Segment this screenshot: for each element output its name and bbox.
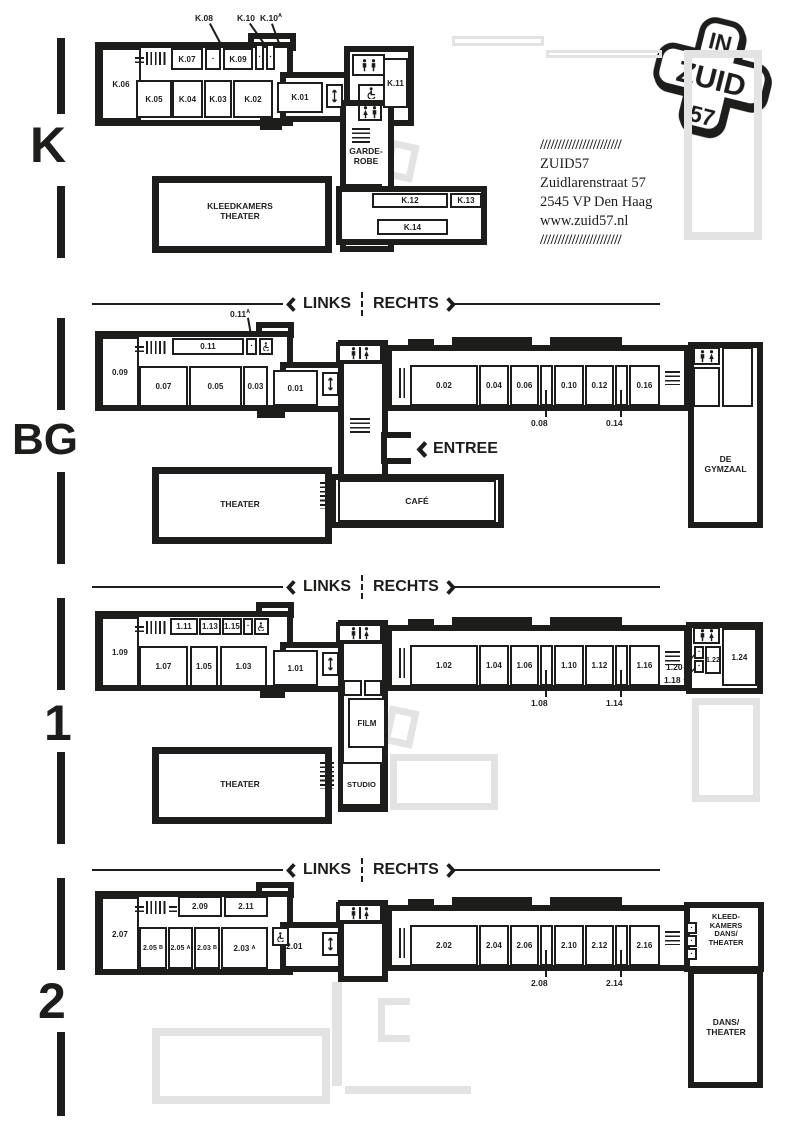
person-icon (699, 350, 706, 363)
wheelchair-icon (366, 87, 378, 99)
links-label: LINKS (303, 578, 351, 596)
person-icon (350, 627, 357, 640)
stairs-hatch (135, 346, 144, 352)
room-1-10: 1.10 (554, 645, 584, 686)
room-0-01: 0.01 (273, 370, 318, 406)
room-k11: K.11 (383, 58, 408, 108)
rechts-label: RECHTS (373, 578, 439, 596)
callout-1-08: 1.08 (531, 698, 548, 708)
room-k02: K.02 (233, 80, 273, 118)
direction-divider (361, 858, 363, 882)
entree-label: ENTREE (416, 440, 498, 458)
callout-leader (620, 670, 622, 697)
room-1-02: 1.02 (410, 645, 478, 686)
wc-room (336, 902, 384, 924)
callout-0-14: 0.14 (606, 418, 623, 428)
direction-header: LINKS RECHTS (286, 575, 456, 599)
kleedkamers-dans-label: KLEED- KAMERS DANS/ THEATER (696, 913, 756, 948)
stairs-hatch (146, 341, 166, 354)
stairs-hatch (342, 184, 382, 192)
room-unlabeled: ▪ (243, 618, 253, 635)
ghost-outline (546, 50, 662, 58)
room-1-09: 1.09 (101, 617, 139, 687)
dot-marker: ▪ (691, 952, 693, 957)
person-icon (708, 629, 715, 642)
stairs-hatch (135, 906, 144, 912)
floor-2-bar-top (57, 878, 65, 970)
wheelchair-icon (262, 342, 271, 351)
wc-accessible-room (358, 84, 385, 102)
address-website: www.zuid57.nl (540, 212, 652, 231)
room-1-15: 1.15 (222, 618, 242, 635)
ghost-outline (452, 36, 544, 46)
room-2-05a: 2.05A (168, 927, 193, 969)
room-2-03b: 2.03B (194, 927, 220, 969)
elevator-icon (326, 84, 343, 108)
room-1-22: 1.22 (705, 646, 721, 674)
stairs-hatch (352, 128, 370, 145)
person-icon (370, 59, 377, 72)
stairs-hatch (135, 626, 144, 632)
stairs-hatch (665, 371, 680, 385)
wheelchair-icon (276, 932, 286, 942)
ghost-outline (378, 998, 410, 1042)
wc-divider (359, 907, 361, 919)
room-unlabeled (364, 680, 382, 696)
wall-tab (260, 118, 282, 130)
room-0-06: 0.06 (510, 365, 539, 406)
film-room: FILM (348, 698, 386, 748)
garderobe-label: GARDE- ROBE (336, 147, 396, 167)
links-label: LINKS (303, 861, 351, 879)
floor-2-letter: 2 (38, 976, 66, 1026)
links-label: LINKS (303, 295, 351, 313)
floor-1-bar-bottom (57, 752, 65, 844)
room-1-03: 1.03 (220, 646, 267, 687)
wheelchair-icon (257, 622, 266, 631)
room-1-04: 1.04 (479, 645, 509, 686)
wc-room (336, 342, 384, 364)
floor-1-bar-top (57, 598, 65, 690)
callout-leader (545, 670, 547, 697)
direction-rule (452, 586, 660, 588)
ghost-outline (332, 982, 342, 1086)
direction-header: LINKS RECHTS (286, 858, 456, 882)
direction-divider (361, 575, 363, 599)
room-k03: K.03 (204, 80, 232, 118)
vent-hatch (399, 648, 407, 678)
wc-divider (359, 627, 361, 639)
room-1-24: 1.24 (722, 628, 757, 686)
callout-k10a: K.10A (260, 13, 282, 23)
chevron-left-icon (286, 297, 296, 312)
direction-rule (92, 586, 283, 588)
cafe-room: CAFÉ (338, 480, 496, 522)
room-2-12: 2.12 (585, 925, 614, 966)
floor-bg-bar-top (57, 318, 65, 410)
room-0-11: 0.11 (172, 338, 244, 355)
elevator-icon (322, 652, 339, 676)
callout-2-14: 2.14 (606, 978, 623, 988)
address-city: 2545 VP Den Haag (540, 193, 652, 212)
chevron-left-icon (416, 441, 428, 458)
direction-header: LINKS RECHTS (286, 292, 456, 316)
theater-label: THEATER (160, 500, 320, 510)
room-0-11a: ▪ (246, 338, 257, 355)
room-2-06: 2.06 (510, 925, 539, 966)
address-slashes-top: /////////////////////// (540, 136, 652, 155)
room-2-02: 2.02 (410, 925, 478, 966)
floor-2-bar-bottom (57, 1032, 65, 1116)
person-icon (350, 907, 357, 920)
room-k10a: ▪ (266, 44, 275, 70)
direction-divider (361, 292, 363, 316)
room-2-11: 2.11 (224, 896, 268, 917)
dot-marker: ▪ (698, 664, 700, 669)
floor-bg-bar-bottom (57, 472, 65, 564)
stairs-hatch (146, 52, 166, 65)
room-1-05: 1.05 (190, 646, 218, 687)
direction-rule (92, 303, 283, 305)
wc-room (693, 627, 720, 644)
address-street: Zuidlarenstraat 57 (540, 174, 652, 193)
ghost-outline (390, 754, 498, 810)
vent-hatch (320, 482, 334, 509)
room-2-04: 2.04 (479, 925, 509, 966)
room-0-16: 0.16 (629, 365, 660, 406)
room-1-11: 1.11 (170, 618, 198, 635)
room-k13: K.13 (450, 193, 482, 208)
wall-tab (257, 406, 285, 418)
room-k07: K.07 (171, 48, 203, 70)
dot-marker: ▪ (212, 57, 214, 62)
room-2-16: 2.16 (629, 925, 660, 966)
vent-hatch (320, 762, 334, 789)
room-1-12: 1.12 (585, 645, 614, 686)
room-k12: K.12 (372, 193, 448, 208)
room-1-07: 1.07 (139, 646, 188, 687)
stairs-hatch (146, 901, 168, 914)
floor-k-bar-top (57, 38, 65, 114)
dot-marker: ▪ (691, 939, 693, 944)
floor-bg-letter: BG (12, 418, 78, 462)
callout-leader (620, 950, 622, 977)
person-icon (371, 106, 378, 119)
room-0-10: 0.10 (554, 365, 584, 406)
callout-leader (545, 950, 547, 977)
vent-hatch (399, 368, 407, 398)
ghost-outline (692, 698, 760, 802)
room-1-16: 1.16 (629, 645, 660, 686)
room-k14: K.14 (377, 219, 448, 235)
room-0-07: 0.07 (139, 366, 188, 407)
room-2-01-label: 2.01 (286, 942, 316, 952)
callout-leader (545, 390, 547, 417)
dot-marker: ▪ (270, 55, 272, 60)
wc-women-room (358, 104, 382, 121)
room-unlabeled (693, 367, 720, 407)
elevator-icon (322, 932, 339, 956)
room-k04: K.04 (172, 80, 203, 118)
dans-theater-label: DANS/ THEATER (694, 1018, 758, 1038)
wc-accessible-room (259, 338, 273, 355)
kleedkamers-theater-label: KLEEDKAMERS THEATER (160, 202, 320, 222)
room-1-13: 1.13 (199, 618, 221, 635)
theater-label: THEATER (160, 780, 320, 790)
rechts-label: RECHTS (373, 295, 439, 313)
ghost-outline (684, 50, 762, 240)
stairs-hatch (135, 57, 144, 63)
ghost-outline (152, 1028, 330, 1104)
person-icon (363, 907, 370, 920)
wc-men-room (352, 54, 385, 76)
room-k05: K.05 (136, 80, 172, 118)
room-0-03: 0.03 (243, 366, 268, 407)
stairs-hatch (665, 931, 680, 945)
dot-marker: ▪ (698, 650, 700, 655)
room-2-07: 2.07 (101, 897, 139, 971)
floor-k-bar-bottom (57, 186, 65, 258)
room-2-10: 2.10 (554, 925, 584, 966)
callout-leader (620, 390, 622, 417)
room-unlabeled: ▪ (686, 948, 697, 960)
direction-rule (452, 303, 660, 305)
dot-marker: ▪ (247, 624, 249, 629)
studio-room: STUDIO (341, 762, 382, 806)
stairs-hatch (169, 906, 177, 912)
person-icon (361, 59, 368, 72)
address-block: /////////////////////// ZUID57 Zuidlaren… (540, 136, 652, 250)
person-icon (363, 347, 370, 360)
room-unlabeled (343, 680, 362, 696)
room-2-05b: 2.05B (139, 927, 167, 969)
floor-k-letter: K (30, 120, 66, 170)
wc-room (336, 622, 384, 644)
wall-tab (260, 686, 285, 698)
dot-marker: ▪ (691, 926, 693, 931)
floor-1-letter: 1 (44, 698, 72, 748)
ghost-outline (345, 1086, 471, 1094)
vent-hatch (399, 928, 407, 958)
direction-rule (92, 869, 283, 871)
address-name: ZUID57 (540, 155, 652, 174)
room-0-12: 0.12 (585, 365, 614, 406)
wc-divider (359, 347, 361, 359)
callout-2-08: 2.08 (531, 978, 548, 988)
person-icon (708, 350, 715, 363)
callout-leader (683, 646, 697, 682)
chevron-left-icon (286, 863, 296, 878)
callout-1-14: 1.14 (606, 698, 623, 708)
room-0-05: 0.05 (189, 366, 242, 407)
person-icon (363, 627, 370, 640)
room-2-09: 2.09 (178, 896, 222, 917)
person-icon (699, 629, 706, 642)
callout-1-20: 1.20 (666, 662, 683, 672)
floorplan-poster: K BG 1 2 IN ZUID 57 ////////////////////… (0, 0, 793, 1122)
room-k09: K.09 (223, 48, 253, 70)
room-k08: ▪ (205, 48, 221, 70)
room-k01: K.01 (277, 82, 323, 113)
direction-rule (452, 869, 660, 871)
callout-k08: K.08 (195, 13, 213, 23)
stairs-hatch (146, 621, 166, 634)
dot-marker: ▪ (259, 55, 261, 60)
room-k10: ▪ (255, 44, 264, 70)
room-1-01: 1.01 (273, 650, 318, 686)
entree-notch (381, 432, 411, 464)
gymzaal-label: DE GYMZAAL (690, 455, 761, 475)
room-2-03a: 2.03A (221, 927, 268, 969)
person-icon (362, 106, 369, 119)
wc-accessible-room (254, 618, 269, 635)
wc-room (693, 347, 720, 365)
callout-0-08: 0.08 (531, 418, 548, 428)
dot-marker: ▪ (251, 344, 253, 349)
room-1-06: 1.06 (510, 645, 539, 686)
address-slashes-bottom: /////////////////////// (540, 231, 652, 250)
person-icon (350, 347, 357, 360)
rechts-label: RECHTS (373, 861, 439, 879)
callout-1-18: 1.18 (664, 675, 681, 685)
room-0-04: 0.04 (479, 365, 509, 406)
elevator-icon (322, 372, 339, 396)
stairs-hatch (350, 418, 370, 435)
callout-k10: K.10 (237, 13, 255, 23)
chevron-left-icon (286, 580, 296, 595)
room-0-09: 0.09 (101, 337, 139, 407)
room-unlabeled (722, 347, 753, 407)
room-0-02: 0.02 (410, 365, 478, 406)
